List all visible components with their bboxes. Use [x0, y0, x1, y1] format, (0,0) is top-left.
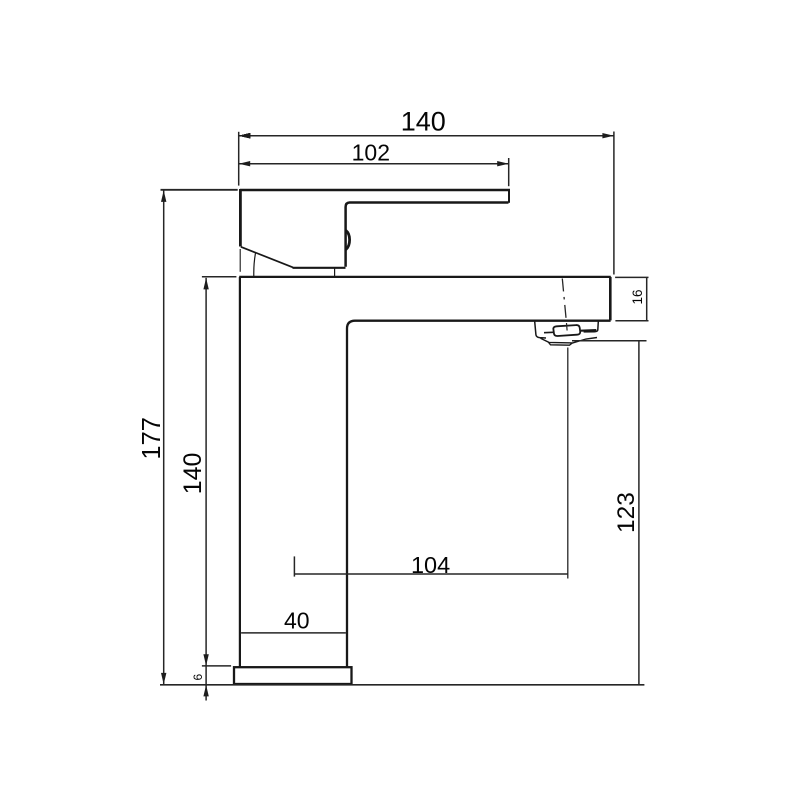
svg-text:123: 123 [613, 492, 640, 533]
svg-text:40: 40 [284, 608, 310, 634]
svg-text:140: 140 [401, 106, 446, 136]
svg-text:104: 104 [411, 552, 450, 578]
svg-text:6: 6 [191, 674, 205, 681]
svg-text:140: 140 [179, 453, 207, 495]
svg-text:102: 102 [352, 139, 390, 165]
svg-text:16: 16 [630, 289, 645, 304]
svg-text:177: 177 [138, 417, 166, 460]
